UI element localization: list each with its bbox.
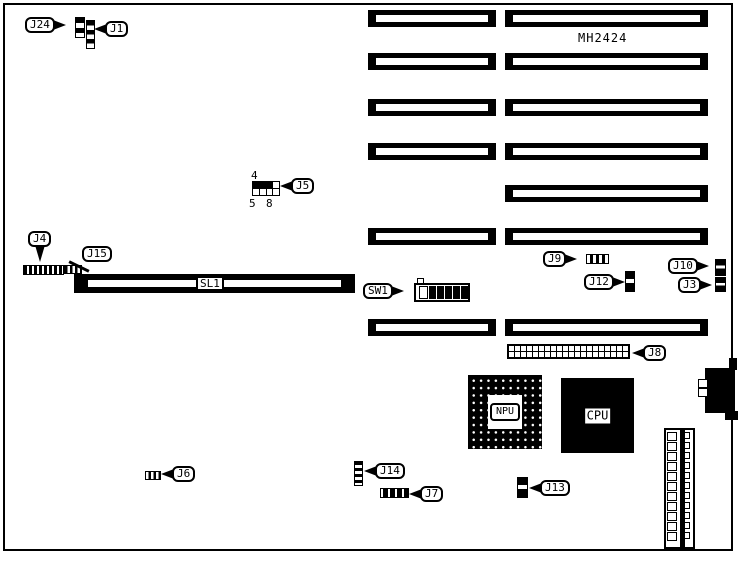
expansion-slot [505, 319, 708, 336]
expansion-slot [505, 228, 708, 245]
callout-j5: J5 [291, 178, 314, 194]
expansion-slot [368, 99, 496, 116]
motherboard-diagram: MH2424 J24 J1 4 5 8 J5 J4 J15 SL1 SW1 [0, 0, 738, 561]
jumper-j6 [145, 471, 161, 480]
npu-label: NPU [490, 403, 520, 421]
jumper-j13 [517, 477, 528, 498]
sw1-switch-off [419, 286, 428, 299]
callout-j6: J6 [172, 466, 195, 482]
npu-socket: NPU [468, 375, 542, 449]
sw1-switch [453, 286, 460, 299]
power-connector-sockets [667, 432, 677, 541]
expansion-slot [505, 10, 708, 27]
jumper-j14 [354, 461, 363, 486]
cpu-label: CPU [585, 408, 611, 423]
power-connector [664, 428, 695, 549]
j5-pin-8-label: 8 [266, 198, 273, 209]
keyboard-connector-tab [725, 411, 738, 420]
jumper-j7 [380, 488, 409, 498]
j5-pin-5-label: 5 [249, 198, 256, 209]
power-connector-pins [684, 432, 690, 539]
keyboard-connector [705, 368, 735, 413]
expansion-slot [505, 185, 708, 202]
callout-j1: J1 [105, 21, 128, 37]
callout-sw1: SW1 [363, 283, 393, 299]
expansion-slot [368, 319, 496, 336]
part-number: MH2424 [578, 32, 627, 44]
expansion-slot [368, 10, 496, 27]
callout-j15: J15 [82, 246, 112, 262]
slot-sl1-label: SL1 [196, 276, 224, 291]
jumper-j10 [715, 259, 726, 276]
jumper-j5 [252, 181, 280, 196]
sw1-switch [437, 286, 444, 299]
jumper-j9 [586, 254, 609, 264]
expansion-slot [368, 228, 496, 245]
expansion-slot [505, 53, 708, 70]
callout-j7: J7 [420, 486, 443, 502]
callout-j9: J9 [543, 251, 566, 267]
callout-j14: J14 [375, 463, 405, 479]
dip-switch-sw1 [414, 283, 470, 302]
keyboard-connector-pin [698, 388, 708, 397]
expansion-slot [368, 53, 496, 70]
sw1-switch [461, 286, 468, 299]
j5-pin-4-label: 4 [251, 170, 258, 181]
callout-j12: J12 [584, 274, 614, 290]
sw1-switch [445, 286, 452, 299]
expansion-slot [505, 143, 708, 160]
jumper-j24 [75, 17, 85, 38]
callout-j3: J3 [678, 277, 701, 293]
keyboard-connector-pin [698, 379, 708, 388]
jumper-j3 [715, 277, 726, 292]
expansion-slot [505, 99, 708, 116]
callout-j4: J4 [28, 231, 51, 247]
callout-j24: J24 [25, 17, 55, 33]
callout-j10: J10 [668, 258, 698, 274]
jumper-j12 [625, 271, 635, 292]
callout-j8: J8 [643, 345, 666, 361]
connector-j8 [507, 344, 630, 359]
sw1-switch [429, 286, 436, 299]
jumper-j4 [23, 265, 64, 275]
cpu-chip: CPU [561, 378, 634, 453]
npu-chip: NPU [488, 395, 522, 429]
callout-j13: J13 [540, 480, 570, 496]
expansion-slot [368, 143, 496, 160]
